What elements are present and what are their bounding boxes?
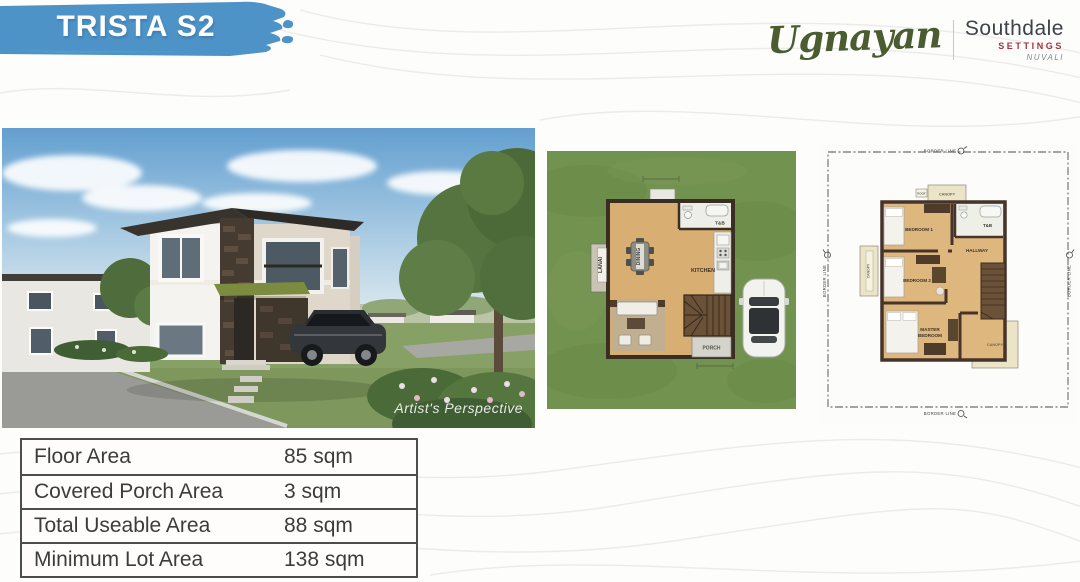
canopy-top-label: CANOPY	[939, 193, 956, 197]
second-floor-plan: BORDER LINE BORDER LINE BORDER LINE BORD…	[820, 143, 1076, 425]
bedroom1-label: BEDROOM 1	[905, 227, 933, 232]
flower-bushes	[367, 368, 535, 428]
hallway-label: HALLWAY	[966, 248, 988, 253]
canopy-bottom-label: CANOPY	[987, 343, 1004, 347]
master-bedroom-label-line1: MASTER	[920, 327, 940, 332]
house-photo: Artist's Perspective	[2, 128, 535, 428]
brochure-slide: TRISTA S2 Ugnayan Southdale SETTINGS NUV…	[0, 0, 1080, 582]
bathtub	[706, 205, 728, 216]
parked-car-top	[739, 279, 789, 357]
fridge	[717, 235, 729, 245]
table-row: Covered Porch Area 3 sqm	[22, 474, 416, 508]
roof-label: ROOF	[917, 192, 926, 196]
brand-wordmark: Southdale SETTINGS NUVALI	[954, 18, 1064, 62]
second-tnb-room	[955, 204, 1003, 237]
dining-label: DINING	[636, 248, 642, 266]
stove	[717, 248, 729, 258]
row-label: Covered Porch Area	[22, 480, 284, 504]
title-banner: TRISTA S2	[0, 0, 300, 58]
toilet	[685, 212, 692, 219]
ground-tnb-label: T&B	[715, 221, 725, 227]
specs-table: Floor Area 85 sqm Covered Porch Area 3 s…	[20, 438, 418, 578]
border-line-label-top: BORDER LINE	[924, 149, 956, 154]
row-label: Total Useable Area	[22, 514, 284, 538]
row-value: 88 sqm	[284, 514, 416, 538]
table-row: Total Useable Area 88 sqm	[22, 508, 416, 542]
row-label: Minimum Lot Area	[22, 548, 284, 572]
house-rendering	[2, 128, 535, 428]
kitchen-counters	[714, 232, 731, 293]
table-row: Floor Area 85 sqm	[22, 440, 416, 474]
lanai-label: LANAI	[598, 257, 604, 273]
kitchen-label: KITCHEN	[691, 268, 715, 274]
brand-location-label: NUVALI	[965, 53, 1064, 62]
porch-label: PORCH	[702, 346, 720, 352]
border-line-label-bottom: BORDER LINE	[924, 411, 956, 416]
row-value: 85 sqm	[284, 445, 416, 469]
row-label: Floor Area	[22, 445, 284, 469]
row-value: 138 sqm	[284, 548, 416, 572]
brand-settings-label: SETTINGS	[965, 41, 1064, 51]
brand-development-name: Southdale	[965, 18, 1064, 39]
photo-caption: Artist's Perspective	[394, 400, 523, 416]
brand-logo: Ugnayan Southdale SETTINGS NUVALI	[767, 6, 1064, 68]
table-row: Minimum Lot Area 138 sqm	[22, 542, 416, 576]
page-title: TRISTA S2	[0, 10, 272, 44]
brand-script-name: Ugnayan	[766, 15, 954, 58]
living-set	[610, 299, 665, 351]
second-tnb-label: T&B	[983, 223, 992, 228]
ground-floor-plan: LANAI DINING T&B KITCHEN PORCH	[547, 151, 796, 409]
canopy-left-label: CANOPY	[867, 263, 871, 278]
second-stairs	[981, 263, 1005, 319]
bedroom2-label: BEDROOM 2	[903, 278, 931, 283]
master-bedroom-label-line2: BEDROOM	[918, 333, 942, 338]
row-value: 3 sqm	[284, 480, 416, 504]
border-line-label-right: BORDER LINE	[1067, 265, 1072, 297]
border-line-label-left: BORDER LINE	[822, 265, 827, 297]
sofa	[617, 302, 657, 315]
ground-stairs	[684, 295, 731, 336]
coffee-table	[627, 318, 645, 329]
